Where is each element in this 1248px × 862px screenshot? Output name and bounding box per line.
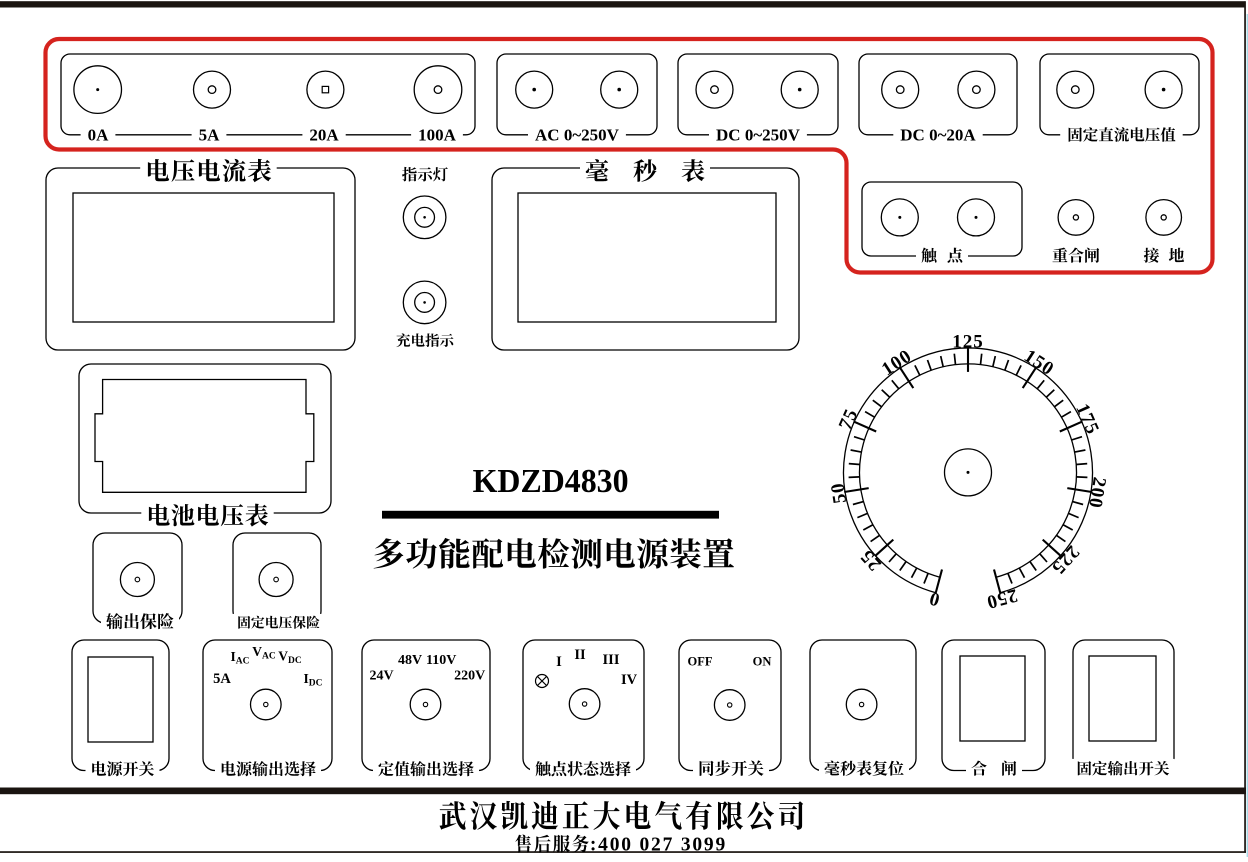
svg-text:220V: 220V (454, 669, 485, 684)
svg-text:DC 0~20A: DC 0~20A (900, 126, 976, 145)
svg-text:I: I (556, 654, 562, 670)
svg-text::400 027 3099: :400 027 3099 (590, 835, 727, 856)
svg-text:110V: 110V (426, 653, 456, 668)
svg-text:50: 50 (827, 481, 851, 505)
svg-text:5A: 5A (199, 126, 221, 145)
svg-text:OFF: OFF (688, 655, 713, 669)
svg-text:125: 125 (952, 331, 984, 352)
svg-text:48V: 48V (398, 653, 422, 668)
svg-text:IV: IV (621, 672, 638, 688)
svg-text:AC 0~250V: AC 0~250V (535, 126, 620, 145)
svg-text:20A: 20A (309, 126, 339, 145)
svg-text:100A: 100A (418, 126, 457, 145)
svg-text:KDZD4830: KDZD4830 (473, 463, 629, 500)
svg-text:III: III (603, 652, 620, 668)
svg-text:II: II (574, 647, 586, 663)
svg-text:DC 0~250V: DC 0~250V (716, 126, 801, 145)
svg-text:5A: 5A (213, 671, 231, 687)
svg-text:ON: ON (753, 655, 772, 669)
svg-text:24V: 24V (370, 669, 394, 684)
svg-text:0A: 0A (88, 126, 110, 145)
